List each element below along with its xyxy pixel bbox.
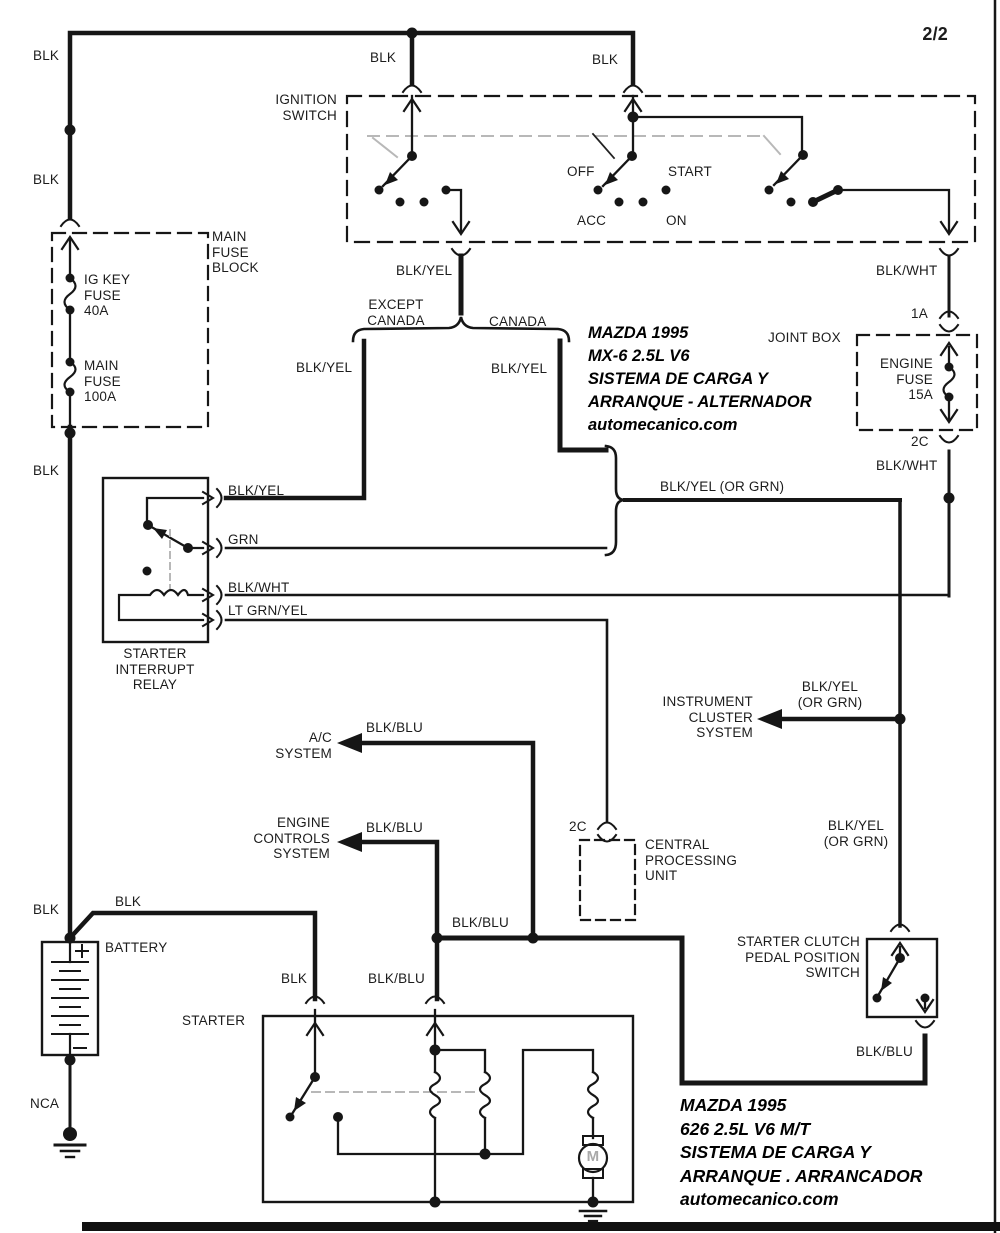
ignition-switch-label: IGNITION SWITCH (252, 92, 337, 123)
position-acc: ACC (577, 213, 606, 229)
wire-label-blk-yel: BLK/YEL (296, 360, 352, 376)
battery (42, 942, 98, 1157)
ignition-switch-box (347, 86, 975, 256)
canada-split (226, 256, 606, 498)
title-block-bottom: MAZDA 1995 626 2.5L V6 M/T SISTEMA DE CA… (680, 1094, 922, 1212)
wire-label-blk-wht: BLK/WHT (876, 458, 937, 474)
title-line: ARRANQUE - ALTERNADOR (588, 393, 812, 411)
arrow-left-icon (757, 709, 782, 729)
wire-label-blk: BLK (33, 48, 59, 64)
main-fuse-label: MAIN FUSE 100A (84, 358, 121, 405)
brace-icon (606, 446, 625, 555)
wire-label-blk-blu: BLK/BLU (452, 915, 509, 931)
canada-label: CANADA (489, 314, 546, 330)
wire-label-blk-blu: BLK/BLU (366, 720, 423, 736)
wire-label-blk-blu: BLK/BLU (366, 820, 423, 836)
pin-icon (217, 611, 222, 629)
position-off: OFF (567, 164, 595, 180)
cpu-label: CENTRAL PROCESSING UNIT (645, 837, 737, 884)
title-line: 626 2.5L V6 M/T (680, 1119, 810, 1139)
coil-icon (480, 1072, 490, 1118)
fuse-icon (65, 278, 76, 310)
wire-label-blk-yel-or-grn: BLK/YEL (OR GRN) (818, 818, 894, 849)
title-line: ARRANQUE . ARRANCADOR (680, 1166, 922, 1186)
wire-label-blk-yel: BLK/YEL (491, 361, 547, 377)
except-canada-label: EXCEPT CANADA (360, 297, 432, 328)
plus-icon (76, 945, 88, 957)
wire-label-blk: BLK (33, 172, 59, 188)
ig-key-fuse-label: IG KEY FUSE 40A (84, 272, 130, 319)
wire-label-nca: NCA (30, 1096, 59, 1112)
title-line: SISTEMA DE CARGA Y (588, 370, 768, 388)
arrow-left-icon (337, 733, 362, 753)
wire-label-blk: BLK (33, 902, 59, 918)
pin-icon (217, 586, 222, 604)
central-processing-unit (580, 823, 635, 921)
coil-icon (588, 1072, 598, 1118)
starter-interrupt-relay-label: STARTER INTERRUPT RELAY (103, 646, 207, 693)
wire-label-blk-wht: BLK/WHT (228, 580, 289, 596)
connector-2c-cpu-label: 2C (569, 819, 587, 835)
instrument-cluster-label: INSTRUMENT CLUSTER SYSTEM (643, 694, 753, 741)
title-line: MAZDA 1995 (680, 1095, 786, 1115)
joint-box-label: JOINT BOX (768, 330, 841, 346)
connector-icon (940, 325, 958, 332)
wiring-diagram-page: 2/2 BLK BLK BLK BLK IGNITION SWITCH OFF … (0, 0, 1000, 1233)
top-blk-bus (65, 28, 634, 219)
arrow-left-icon (337, 832, 362, 852)
title-line: SISTEMA DE CARGA Y (680, 1142, 871, 1162)
title-line: automecanico.com (680, 1189, 839, 1209)
title-line: MX-6 2.5L V6 (588, 347, 690, 365)
starter-clutch-switch-label: STARTER CLUTCH PEDAL POSITION SWITCH (720, 934, 860, 981)
starter-clutch-switch (867, 925, 937, 1028)
wire-label-blk-yel-or-grn: BLK/YEL (OR GRN) (660, 479, 784, 495)
starter-label: STARTER (182, 1013, 245, 1029)
battery-cells-icon (52, 962, 88, 1034)
motor-m-label: M (585, 1149, 601, 1165)
connector-2c-label: 2C (911, 434, 929, 450)
pin-icon (217, 539, 222, 557)
connector-icon (940, 436, 958, 443)
coil-icon (430, 1072, 440, 1118)
page-number: 2/2 (890, 27, 948, 43)
starter-assembly (263, 997, 633, 1222)
ac-system-label: A/C SYSTEM (270, 730, 332, 761)
starter-interrupt-relay (103, 478, 222, 642)
wire-label-blk-blu: BLK/BLU (368, 971, 425, 987)
wire-label-blk-yel: BLK/YEL (396, 263, 452, 279)
wire-label-blk-yel: BLK/YEL (228, 483, 284, 499)
position-start: START (668, 164, 712, 180)
main-fuse-block (52, 220, 208, 428)
engine-controls-label: ENGINE CONTROLS SYSTEM (238, 815, 330, 862)
connector-icon (598, 823, 616, 830)
connector-icon (916, 1021, 934, 1028)
wire-label-blk: BLK (370, 50, 396, 66)
wire-label-lt-grn-yel: LT GRN/YEL (228, 603, 308, 619)
pin-icon (217, 489, 222, 507)
wire-label-blk: BLK (33, 463, 59, 479)
coil-icon (119, 590, 203, 620)
position-on: ON (666, 213, 687, 229)
title-line: MAZDA 1995 (588, 324, 688, 342)
wire-label-blk: BLK (115, 894, 141, 910)
wire-label-blk: BLK (281, 971, 307, 987)
engine-fuse-label: ENGINE FUSE 15A (863, 356, 933, 403)
main-fuse-block-label: MAIN FUSE BLOCK (212, 229, 259, 276)
connector-icon (624, 86, 642, 93)
connector-icon (61, 220, 79, 227)
wire-label-blk: BLK (592, 52, 618, 68)
connector-icon (403, 86, 421, 93)
wiring-diagram-svg (0, 0, 1000, 1233)
wire-label-blk-wht: BLK/WHT (876, 263, 937, 279)
connector-1a-label: 1A (911, 306, 928, 322)
battery-label: BATTERY (105, 940, 167, 956)
wire-label-grn: GRN (228, 532, 259, 548)
wire-label-blk-yel-or-grn: BLK/YEL (OR GRN) (793, 679, 867, 710)
title-line: automecanico.com (588, 416, 737, 434)
wire-label-blk-blu: BLK/BLU (856, 1044, 913, 1060)
